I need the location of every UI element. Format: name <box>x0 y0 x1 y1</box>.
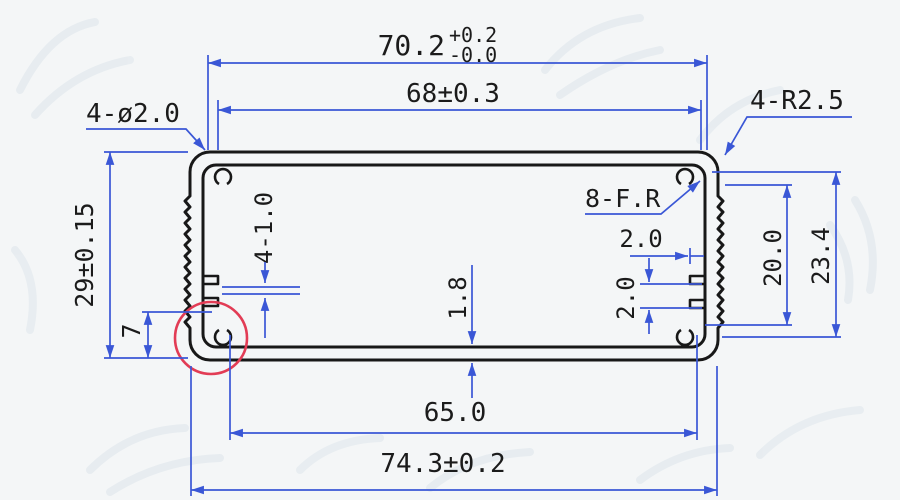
callout-screw-holes: 4-ø2.0 <box>86 99 205 150</box>
dim-label-top-width: 70.2 <box>378 29 445 62</box>
screw-boss-top-right <box>677 169 693 184</box>
dimension-slot-pitch: 2.0 <box>612 258 702 334</box>
screw-boss-top-left <box>215 169 231 184</box>
dim-label-bottom-wall: 1.8 <box>444 276 472 319</box>
callout-label-fillet: 8-F.R <box>585 184 661 213</box>
dimension-bottom-inner-width: 65.0 <box>230 335 697 440</box>
dim-label-right-inner-height: 20.0 <box>759 229 787 287</box>
dim-label-slot-depth: 2.0 <box>619 225 662 253</box>
dim-label-top-inner-width: 68±0.3 <box>406 79 500 109</box>
dim-label-left-corner-height: 7 <box>117 323 146 338</box>
dim-label-left-height: 29±0.15 <box>70 202 99 307</box>
dim-label-bottom-width: 74.3±0.2 <box>380 449 505 479</box>
callout-corner-radius: 4-R2.5 <box>725 86 852 155</box>
dimension-left-corner-height: 7 <box>117 312 212 358</box>
callout-label-screw-holes: 4-ø2.0 <box>86 99 180 129</box>
dimension-top-inner-width: 68±0.3 <box>218 79 701 150</box>
callout-fillet: 8-F.R <box>585 181 700 214</box>
dimension-rib-slots: 4-1.0 <box>222 192 300 338</box>
drawing-sheet: 70.2 +0.2 -0.0 68±0.3 4-ø2.0 4-R2.5 8-F.… <box>0 0 900 500</box>
dimension-slot-depth: 2.0 <box>619 225 704 264</box>
screw-boss-bottom-right <box>677 330 693 345</box>
dim-label-top-width-tol-lower: -0.0 <box>449 43 497 67</box>
pcb-ribs-right <box>690 276 705 308</box>
dim-label-bottom-inner-width: 65.0 <box>424 398 487 428</box>
profile-drawing-svg: 70.2 +0.2 -0.0 68±0.3 4-ø2.0 4-R2.5 8-F.… <box>0 0 900 500</box>
dimension-bottom-wall: 1.8 <box>444 265 472 398</box>
dim-label-right-feature-height: 23.4 <box>807 227 835 285</box>
screw-boss-bottom-left <box>215 330 231 345</box>
callout-label-corner-radius: 4-R2.5 <box>750 86 844 116</box>
dim-label-rib-slots: 4-1.0 <box>250 192 278 264</box>
dim-label-slot-pitch: 2.0 <box>612 276 640 319</box>
